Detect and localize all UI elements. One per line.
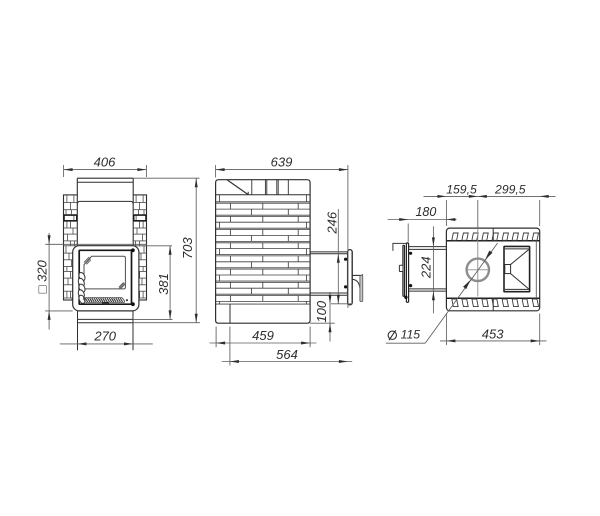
svg-text:703: 703 <box>180 237 195 259</box>
svg-text:299,5: 299,5 <box>494 182 526 196</box>
svg-text:381: 381 <box>156 273 171 295</box>
svg-text:246: 246 <box>324 211 339 234</box>
svg-text:270: 270 <box>93 329 116 344</box>
svg-text:159,5: 159,5 <box>446 182 477 196</box>
svg-text:224: 224 <box>419 256 434 279</box>
svg-text:459: 459 <box>252 328 274 343</box>
svg-text:180: 180 <box>415 205 436 219</box>
svg-text:453: 453 <box>482 327 504 342</box>
svg-text:564: 564 <box>276 347 298 362</box>
svg-text:□ 320: □ 320 <box>34 259 49 293</box>
svg-text:115: 115 <box>401 328 421 342</box>
svg-text:639: 639 <box>271 155 293 170</box>
svg-text:100: 100 <box>314 300 329 322</box>
svg-text:406: 406 <box>94 155 116 170</box>
